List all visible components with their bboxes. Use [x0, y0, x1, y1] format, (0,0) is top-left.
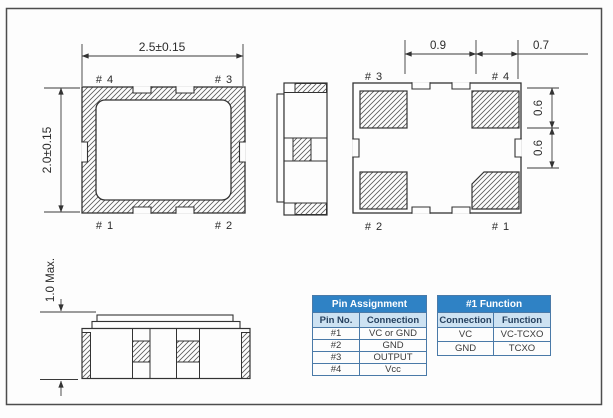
bottom-view-pad-4 [472, 91, 519, 128]
pin1-function-table: #1 Function Connection Function VC VC-TC… [437, 295, 551, 356]
top-view-height-dim-label: 2.0±0.15 [40, 126, 54, 173]
pin4-connection: Vcc [360, 364, 427, 376]
pin1-function-table-title: #1 Function [438, 296, 551, 313]
table-row: #4 Vcc [313, 364, 427, 376]
bottom-view-pad-height-dim-label: 0.6 [533, 100, 545, 116]
top-view-cavity [96, 100, 231, 200]
table-row: VC VC-TCXO [438, 328, 551, 342]
pin-assignment-col-connection: Connection [360, 313, 427, 328]
side-view-lid-edge [277, 94, 284, 202]
pin2-connection: GND [360, 340, 427, 352]
bottom-view-pad-1-chamfered [472, 172, 519, 209]
pin2-number: #2 [313, 340, 360, 352]
table-row: #2 GND [313, 340, 427, 352]
gnd-function: TCXO [494, 342, 551, 356]
vc-connection: VC [438, 328, 494, 342]
side-view-center [277, 83, 327, 215]
pin4-number: #4 [313, 364, 360, 376]
pin1-connection: VC or GND [360, 328, 427, 340]
bottom-view-pad-3 [360, 91, 407, 128]
bottom-view-pin3-label: # 3 [365, 71, 383, 83]
pin1-number: #1 [313, 328, 360, 340]
top-view-pin2-label: # 2 [215, 220, 233, 232]
top-view-pin1-label: # 1 [96, 220, 114, 232]
side-elevation-body [82, 329, 250, 379]
bottom-view-pad-gap-dim-label: 0.6 [533, 140, 545, 156]
pin-assignment-table: Pin Assignment Pin No. Connection #1 VC … [312, 295, 427, 376]
side-elevation-lid-top [97, 315, 233, 322]
top-view-pin3-label: # 3 [215, 74, 233, 86]
side-elevation-view: 1.0 Max. [40, 258, 250, 396]
pin1-function-col-function: Function [494, 313, 551, 328]
vc-function: VC-TCXO [494, 328, 551, 342]
bottom-view: # 3 # 4 # 2 # 1 0.9 0.7 0.6 0.6 [352, 40, 588, 233]
datasheet-drawing-page: # 4 # 3 # 1 # 2 2.5±0.15 2.0±0.15 [0, 0, 613, 418]
pin3-connection: OUTPUT [360, 352, 427, 364]
table-row: #3 OUTPUT [313, 352, 427, 364]
table-row: #1 VC or GND [313, 328, 427, 340]
top-view-pin4-label: # 4 [96, 74, 114, 86]
pin1-function-col-connection: Connection [438, 313, 494, 328]
bottom-view-pad-2 [360, 172, 407, 209]
bottom-view-pin1-label: # 1 [492, 221, 510, 233]
bottom-view-pin4-label: # 4 [492, 71, 510, 83]
side-elevation-height-dim-label: 1.0 Max. [45, 258, 57, 302]
side-elevation-lid [92, 322, 240, 329]
gnd-connection: GND [438, 342, 494, 356]
bottom-view-pitch-dim-label: 0.9 [430, 40, 446, 52]
top-view-width-dim-label: 2.5±0.15 [139, 40, 186, 54]
bottom-view-pin2-label: # 2 [365, 221, 383, 233]
pin-assignment-col-pin-no: Pin No. [313, 313, 360, 328]
table-row: GND TCXO [438, 342, 551, 356]
pin3-number: #3 [313, 352, 360, 364]
bottom-view-pad-width-dim-label: 0.7 [533, 40, 549, 52]
pin-assignment-table-title: Pin Assignment [313, 296, 427, 313]
top-view: # 4 # 3 # 1 # 2 2.5±0.15 2.0±0.15 [40, 40, 246, 232]
